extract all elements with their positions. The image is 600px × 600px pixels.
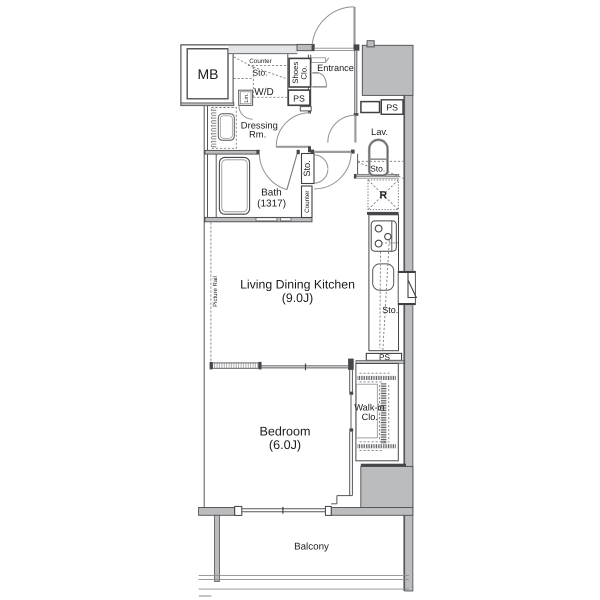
svg-text:(9.0J): (9.0J) [282, 291, 313, 305]
svg-text:Picture Rail: Picture Rail [212, 276, 219, 307]
svg-text:Counter: Counter [249, 58, 271, 65]
svg-text:(1317): (1317) [257, 198, 286, 209]
svg-text:Counter: Counter [304, 190, 311, 212]
svg-text:Bedroom: Bedroom [259, 424, 310, 438]
svg-text:Sto.: Sto. [370, 163, 385, 173]
svg-text:Lin.: Lin. [243, 93, 250, 103]
svg-text:Living Dining Kitchen: Living Dining Kitchen [240, 277, 355, 291]
svg-text:PS: PS [293, 93, 305, 103]
svg-text:(6.0J): (6.0J) [269, 438, 301, 452]
svg-text:W/D: W/D [254, 87, 273, 98]
svg-text:PS: PS [386, 102, 398, 112]
svg-text:Lav.: Lav. [371, 126, 388, 137]
svg-text:Sto.: Sto. [382, 305, 398, 315]
svg-text:Clo.: Clo. [300, 66, 309, 80]
svg-text:MB: MB [198, 66, 219, 82]
svg-text:Rm.: Rm. [249, 129, 266, 140]
svg-text:Bath: Bath [261, 187, 282, 198]
svg-text:Clo.: Clo. [362, 412, 378, 422]
svg-text:Entrance: Entrance [317, 63, 354, 73]
svg-text:R: R [380, 190, 388, 202]
svg-text:Balcony: Balcony [294, 542, 329, 553]
svg-text:Sto.: Sto. [302, 160, 312, 176]
svg-text:Sto.: Sto. [253, 68, 268, 78]
